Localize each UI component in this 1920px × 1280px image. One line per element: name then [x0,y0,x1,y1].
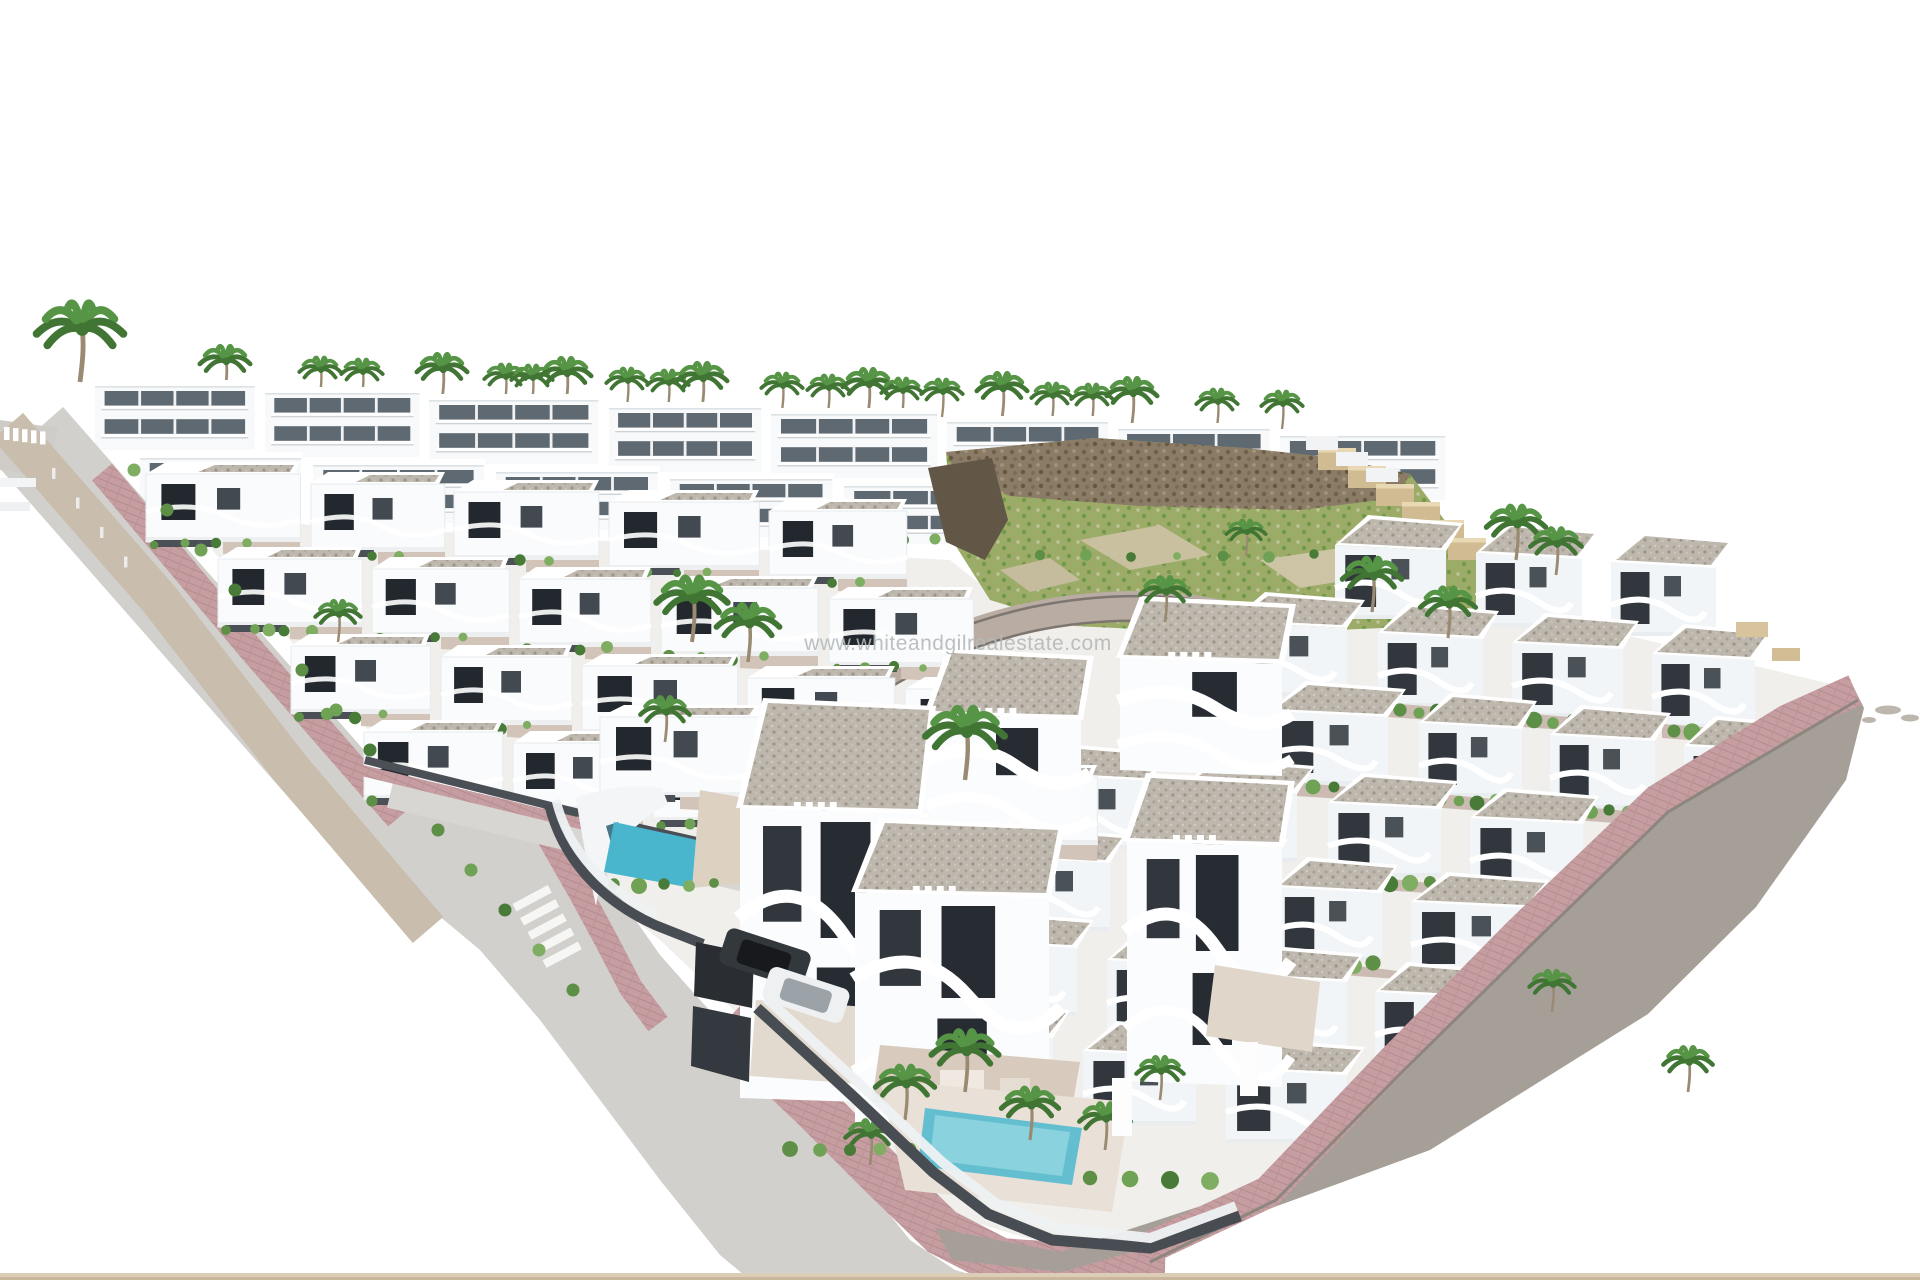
svg-text:www.whiteandgilrealestate.com: www.whiteandgilrealestate.com [803,632,1111,655]
